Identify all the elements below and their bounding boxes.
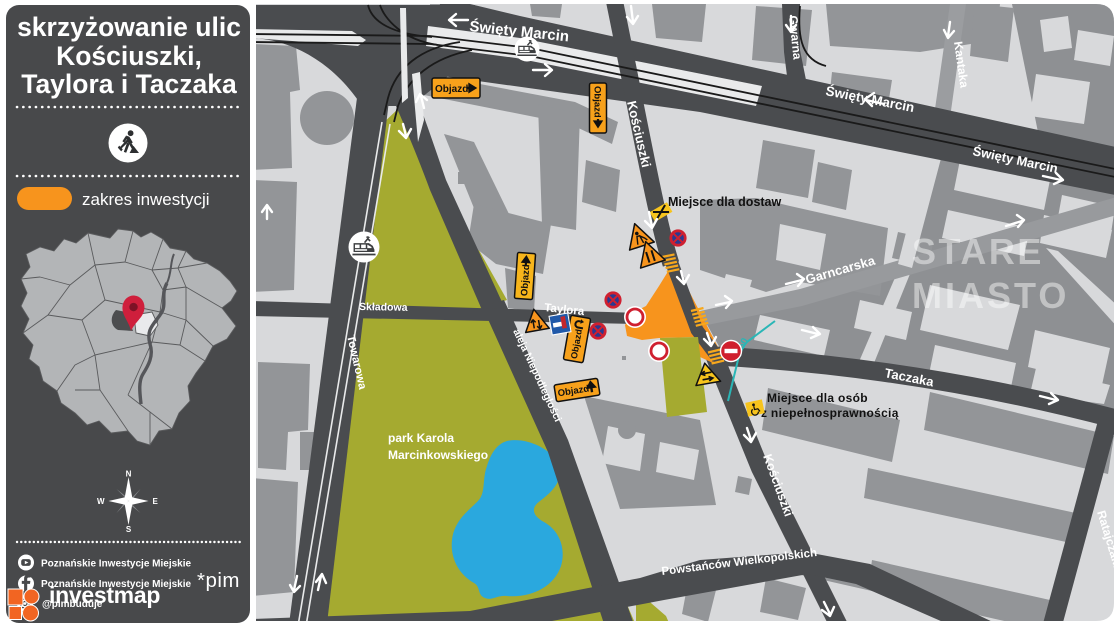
svg-text:E: E (153, 497, 159, 506)
svg-text:Poznańskie Inwestycje Miejskie: Poznańskie Inwestycje Miejskie (41, 559, 192, 570)
svg-text:STARE: STARE (912, 231, 1044, 272)
svg-text:Objazd: Objazd (435, 84, 468, 95)
svg-text:Marcinkowskiego: Marcinkowskiego (388, 448, 488, 462)
svg-text:Miejsce dla osób: Miejsce dla osób (767, 391, 868, 405)
svg-text:Kościuszki,: Kościuszki, (56, 41, 202, 71)
svg-text:MIASTO: MIASTO (912, 275, 1069, 316)
svg-text:Taylora i Taczaka: Taylora i Taczaka (21, 69, 237, 99)
svg-text:Miejsce dla dostaw: Miejsce dla dostaw (668, 195, 782, 209)
svg-text:zakres inwestycji: zakres inwestycji (82, 190, 210, 209)
svg-text:park Karola: park Karola (388, 431, 454, 445)
svg-text:Objazd: Objazd (592, 86, 603, 118)
svg-text:S: S (126, 525, 132, 534)
svg-text:z niepełnosprawnością: z niepełnosprawnością (761, 406, 899, 420)
svg-text:N: N (126, 470, 132, 479)
svg-text:W: W (97, 497, 105, 506)
svg-text:*pim: *pim (197, 569, 240, 592)
svg-text:investmap: investmap (49, 582, 160, 608)
svg-text:Objazd: Objazd (519, 264, 532, 297)
svg-text:Składowa: Składowa (359, 301, 408, 314)
svg-text:skrzyżowanie ulic: skrzyżowanie ulic (17, 12, 241, 42)
